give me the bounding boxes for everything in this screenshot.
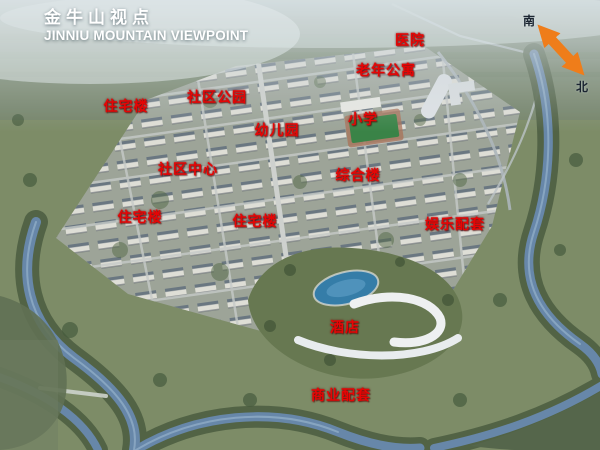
map-label-residential-3: 住宅楼 <box>233 211 278 231</box>
map-label-community-park: 社区公园 <box>187 87 247 107</box>
compass-north-label: 北 <box>576 78 588 95</box>
map-label-primary-school: 小学 <box>348 109 378 129</box>
title-block: 金牛山视点 JINNIU MOUNTAIN VIEWPOINT <box>44 7 248 45</box>
map-label-entertainment-facilities: 娱乐配套 <box>425 214 485 234</box>
map-label-residential-2: 住宅楼 <box>118 207 163 227</box>
map-label-hospital: 医院 <box>395 30 425 50</box>
map-label-senior-apartments: 老年公寓 <box>356 60 416 80</box>
map-label-commercial-facilities: 商业配套 <box>311 385 371 405</box>
page-title-cn: 金牛山视点 <box>44 7 248 28</box>
masterplan-scene <box>0 0 600 450</box>
map-label-hotel: 酒店 <box>330 317 360 337</box>
page-title-en: JINNIU MOUNTAIN VIEWPOINT <box>44 28 248 45</box>
map-label-residential-1: 住宅楼 <box>104 96 149 116</box>
aerial-rendering: 金牛山视点 JINNIU MOUNTAIN VIEWPOINT 南 北 医院老年… <box>0 0 600 450</box>
map-label-mixed-use-building: 综合楼 <box>336 165 381 185</box>
map-label-community-center: 社区中心 <box>158 159 218 179</box>
compass-south-label: 南 <box>523 12 535 29</box>
map-label-kindergarten: 幼儿园 <box>255 120 300 140</box>
